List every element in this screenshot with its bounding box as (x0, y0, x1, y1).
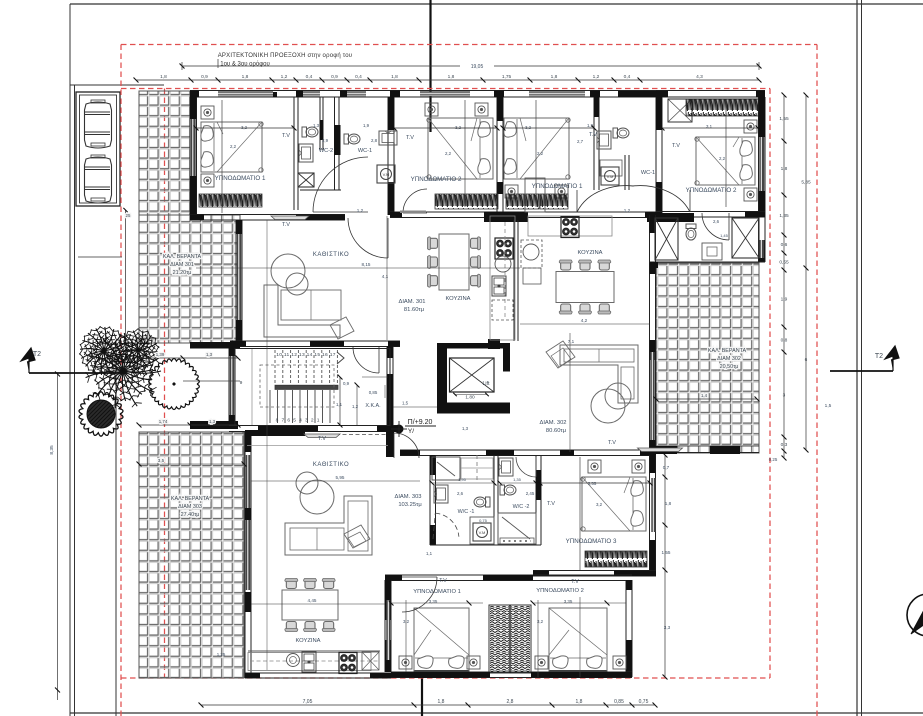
svg-text:2,2: 2,2 (537, 151, 544, 156)
svg-text:ΚΑΘΙΣΤΙΚΟ: ΚΑΘΙΣΤΙΚΟ (313, 462, 349, 468)
svg-text:V.M: V.M (607, 174, 614, 179)
svg-text:ΔΙΑΜ. 302: ΔΙΑΜ. 302 (539, 420, 566, 426)
svg-text:1,1: 1,1 (336, 402, 343, 407)
svg-text:0,75: 0,75 (479, 518, 488, 523)
svg-text:T.V: T.V (282, 133, 290, 139)
svg-text:1,3: 1,3 (209, 419, 216, 424)
svg-text:1,75: 1,75 (502, 74, 512, 80)
svg-text:1.80: 1.80 (465, 395, 475, 401)
svg-text:T.V: T.V (571, 579, 579, 585)
svg-text:T.V: T.V (406, 135, 414, 141)
svg-text:0,9: 0,9 (343, 381, 350, 386)
svg-text:2,2: 2,2 (719, 156, 726, 161)
svg-text:ΚΟΥΖΙΝΑ: ΚΟΥΖΙΝΑ (445, 296, 470, 302)
svg-text:ΔΙΑΜ 302: ΔΙΑΜ 302 (717, 356, 741, 362)
svg-text:20,50τμ: 20,50τμ (720, 364, 739, 370)
svg-text:T.V: T.V (439, 578, 447, 584)
svg-text:1,2: 1,2 (593, 74, 600, 80)
svg-text:ΚΑΛ. ΒΕΡΑΝΤΑ: ΚΑΛ. ΒΕΡΑΝΤΑ (163, 254, 202, 260)
svg-text:T.V: T.V (318, 436, 326, 442)
svg-text:0,7: 0,7 (663, 465, 670, 470)
svg-text:1,3: 1,3 (206, 352, 213, 357)
svg-text:103.25τμ: 103.25τμ (398, 502, 421, 508)
svg-text:27.40τμ: 27.40τμ (181, 512, 200, 518)
svg-text:2,45: 2,45 (526, 491, 535, 496)
svg-text:3,5: 3,5 (158, 458, 165, 463)
svg-text:T.V: T.V (547, 501, 555, 507)
svg-text:4,1: 4,1 (382, 274, 389, 279)
svg-text:0,4: 0,4 (355, 74, 362, 80)
svg-text:2,2: 2,2 (445, 151, 452, 156)
svg-text:T.V: T.V (608, 440, 616, 446)
svg-text:X.K.A.: X.K.A. (365, 403, 380, 409)
svg-text:0,55: 0,55 (779, 260, 789, 266)
svg-text:V.M: V.M (383, 172, 390, 177)
svg-text:ΑΡΧΙΤΕΚΤΟΝΙΚΗ ΠΡΟΕΞΟΧΗ στην ορ: ΑΡΧΙΤΕΚΤΟΝΙΚΗ ΠΡΟΕΞΟΧΗ στην οροφή του (218, 52, 353, 59)
svg-text:0,25: 0,25 (769, 457, 778, 462)
svg-text:1,8: 1,8 (242, 74, 249, 80)
svg-text:0,9: 0,9 (201, 74, 208, 80)
svg-text:7,05: 7,05 (303, 699, 313, 705)
svg-text:1,3: 1,3 (462, 426, 469, 431)
svg-text:1,8: 1,8 (448, 74, 455, 80)
svg-text:0,85: 0,85 (369, 390, 378, 395)
svg-text:2,9: 2,9 (322, 138, 329, 143)
svg-text:T.V: T.V (589, 132, 597, 138)
svg-text:2,6: 2,6 (713, 219, 720, 224)
svg-text:ΔΙΑΜ 301: ΔΙΑΜ 301 (170, 262, 194, 268)
svg-text:1,8: 1,8 (160, 74, 167, 80)
svg-text:1,8: 1,8 (781, 166, 788, 172)
svg-text:ΥΠΝΟΔΩΜΑΤΙΟ 2: ΥΠΝΟΔΩΜΑΤΙΟ 2 (411, 176, 462, 183)
svg-text:1,25: 1,25 (217, 652, 226, 657)
svg-text:3,3: 3,3 (664, 625, 671, 630)
svg-text:WC-1: WC-1 (358, 148, 372, 154)
svg-text:2,7: 2,7 (577, 139, 584, 144)
svg-text:Lift: Lift (483, 381, 490, 387)
svg-text:5,95: 5,95 (336, 475, 345, 480)
svg-text:Υ/: Υ/ (408, 428, 414, 435)
svg-text:1,55: 1,55 (779, 116, 789, 122)
svg-text:3,2: 3,2 (241, 125, 248, 130)
svg-text:ΔΙΑΜ. 301: ΔΙΑΜ. 301 (398, 299, 425, 305)
svg-text:0,8: 0,8 (781, 338, 788, 344)
svg-text:1,8: 1,8 (391, 74, 398, 80)
svg-text:ΚΑΛ. ΒΕΡΑΝΤΑ: ΚΑΛ. ΒΕΡΑΝΤΑ (171, 496, 210, 502)
svg-text:1,8: 1,8 (551, 74, 558, 80)
svg-text:V.M: V.M (479, 530, 486, 535)
svg-text:2,6: 2,6 (457, 491, 464, 496)
svg-text:1,4: 1,4 (701, 393, 708, 398)
svg-text:4,45: 4,45 (308, 598, 317, 603)
svg-text:6: 6 (805, 357, 808, 363)
svg-text:1,55: 1,55 (662, 550, 671, 555)
svg-text:1,5: 1,5 (825, 403, 832, 409)
svg-text:8,35: 8,35 (49, 445, 55, 455)
svg-text:1,74: 1,74 (159, 419, 168, 424)
svg-text:1,35: 1,35 (779, 213, 789, 219)
svg-text:W/C -1: W/C -1 (458, 509, 475, 515)
svg-text:3: 3 (783, 393, 786, 399)
svg-text:3,2: 3,2 (596, 502, 603, 507)
svg-text:2,8: 2,8 (371, 138, 378, 143)
svg-text:ΥΠΝΟΔΩΜΑΤΙΟ 2: ΥΠΝΟΔΩΜΑΤΙΟ 2 (686, 187, 737, 194)
svg-text:ΔΙΑΜ. 303: ΔΙΑΜ. 303 (394, 494, 421, 500)
svg-text:5,85: 5,85 (801, 180, 811, 186)
svg-text:1,3: 1,3 (313, 123, 320, 128)
svg-text:7,1: 7,1 (568, 339, 575, 344)
svg-text:0,4: 0,4 (624, 74, 631, 80)
svg-text:0,3: 0,3 (781, 442, 788, 448)
svg-text:ΚΑΛ. ΒΕΡΑΝΤΑ: ΚΑΛ. ΒΕΡΑΝΤΑ (708, 348, 747, 354)
svg-text:ΥΠΝΟΔΩΜΑΤΙΟ 2: ΥΠΝΟΔΩΜΑΤΙΟ 2 (536, 588, 584, 594)
svg-text:1,2: 1,2 (352, 404, 359, 409)
svg-text:0,9: 0,9 (331, 74, 338, 80)
svg-text:0,6: 0,6 (781, 242, 788, 248)
svg-text:1ου & 3ου ορόφου: 1ου & 3ου ορόφου (220, 61, 270, 68)
svg-text:81.60τμ: 81.60τμ (404, 307, 424, 313)
svg-text:1,2: 1,2 (624, 208, 631, 213)
svg-text:1,39: 1,39 (156, 352, 165, 357)
svg-text:8 7 6 5 4 3 2 1: 8 7 6 5 4 3 2 1 (276, 418, 321, 424)
svg-text:3,2: 3,2 (525, 125, 532, 130)
svg-text:WC-2: WC-2 (319, 148, 333, 154)
svg-text:4,3: 4,3 (696, 74, 703, 80)
svg-text:1,45: 1,45 (720, 233, 729, 238)
svg-text:3,2: 3,2 (455, 125, 462, 130)
svg-text:1,2: 1,2 (281, 74, 288, 80)
svg-text:1,35: 1,35 (513, 477, 522, 482)
svg-text:2,2: 2,2 (230, 144, 237, 149)
svg-text:1,8: 1,8 (576, 699, 583, 705)
svg-text:19,05: 19,05 (471, 64, 484, 70)
svg-text:3,55: 3,55 (588, 481, 597, 486)
svg-text:25: 25 (126, 213, 131, 218)
svg-text:21.20τμ: 21.20τμ (173, 270, 192, 276)
svg-text:WC-1: WC-1 (641, 170, 655, 176)
svg-text:1,8: 1,8 (665, 501, 672, 506)
svg-text:1,2: 1,2 (357, 208, 364, 213)
svg-text:T.V: T.V (672, 143, 680, 149)
svg-text:1,9: 1,9 (363, 123, 370, 128)
svg-text:2,8: 2,8 (507, 699, 514, 705)
svg-text:ΥΠΝΟΔΩΜΑΤΙΟ 1: ΥΠΝΟΔΩΜΑΤΙΟ 1 (532, 183, 583, 190)
svg-text:8,15: 8,15 (362, 262, 371, 267)
svg-text:W/C -2: W/C -2 (513, 504, 530, 510)
svg-text:0,75: 0,75 (639, 699, 649, 705)
svg-text:ΚΟΥΖΙΝΑ: ΚΟΥΖΙΝΑ (577, 250, 602, 256)
svg-text:ΚΑΘΙΣΤΙΚΟ: ΚΑΘΙΣΤΙΚΟ (313, 252, 349, 258)
svg-text:ΔΙΑΜ 303: ΔΙΑΜ 303 (178, 504, 202, 510)
svg-text:0,85: 0,85 (614, 699, 624, 705)
svg-text:T.V: T.V (282, 222, 290, 228)
svg-text:4,2: 4,2 (581, 318, 588, 323)
svg-text:10 11 12 13 14 15 16 17: 10 11 12 13 14 15 16 17 (276, 352, 336, 358)
svg-text:9: 9 (240, 380, 243, 386)
svg-text:ΥΠΝΟΔΩΜΑΤΙΟ 1: ΥΠΝΟΔΩΜΑΤΙΟ 1 (413, 589, 461, 595)
svg-text:1,95: 1,95 (458, 477, 467, 482)
svg-text:0,4: 0,4 (306, 74, 313, 80)
svg-text:1,8: 1,8 (438, 699, 445, 705)
svg-text:T2: T2 (33, 351, 41, 358)
svg-text:1,5: 1,5 (402, 401, 409, 406)
svg-text:ΥΠΝΟΔΩΜΑΤΙΟ 3: ΥΠΝΟΔΩΜΑΤΙΟ 3 (566, 538, 617, 545)
svg-text:ΚΟΥΖΙΝΑ: ΚΟΥΖΙΝΑ (295, 638, 320, 644)
svg-text:1,1: 1,1 (426, 551, 433, 556)
svg-text:T2: T2 (875, 353, 883, 360)
svg-text:80.60τμ: 80.60τμ (546, 428, 566, 434)
svg-text:Π/+9.20: Π/+9.20 (408, 419, 433, 426)
svg-text:1,9: 1,9 (781, 297, 788, 303)
